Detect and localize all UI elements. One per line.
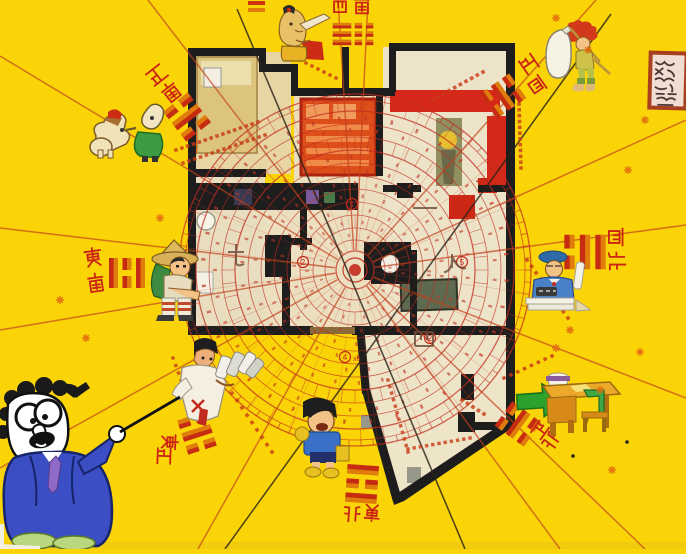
svg-text:5: 5 bbox=[460, 258, 465, 267]
svg-text:4: 4 bbox=[343, 353, 348, 362]
svg-text:x6: x6 bbox=[353, 356, 361, 363]
svg-text:1: 1 bbox=[350, 200, 355, 209]
svg-text:2: 2 bbox=[301, 258, 306, 267]
